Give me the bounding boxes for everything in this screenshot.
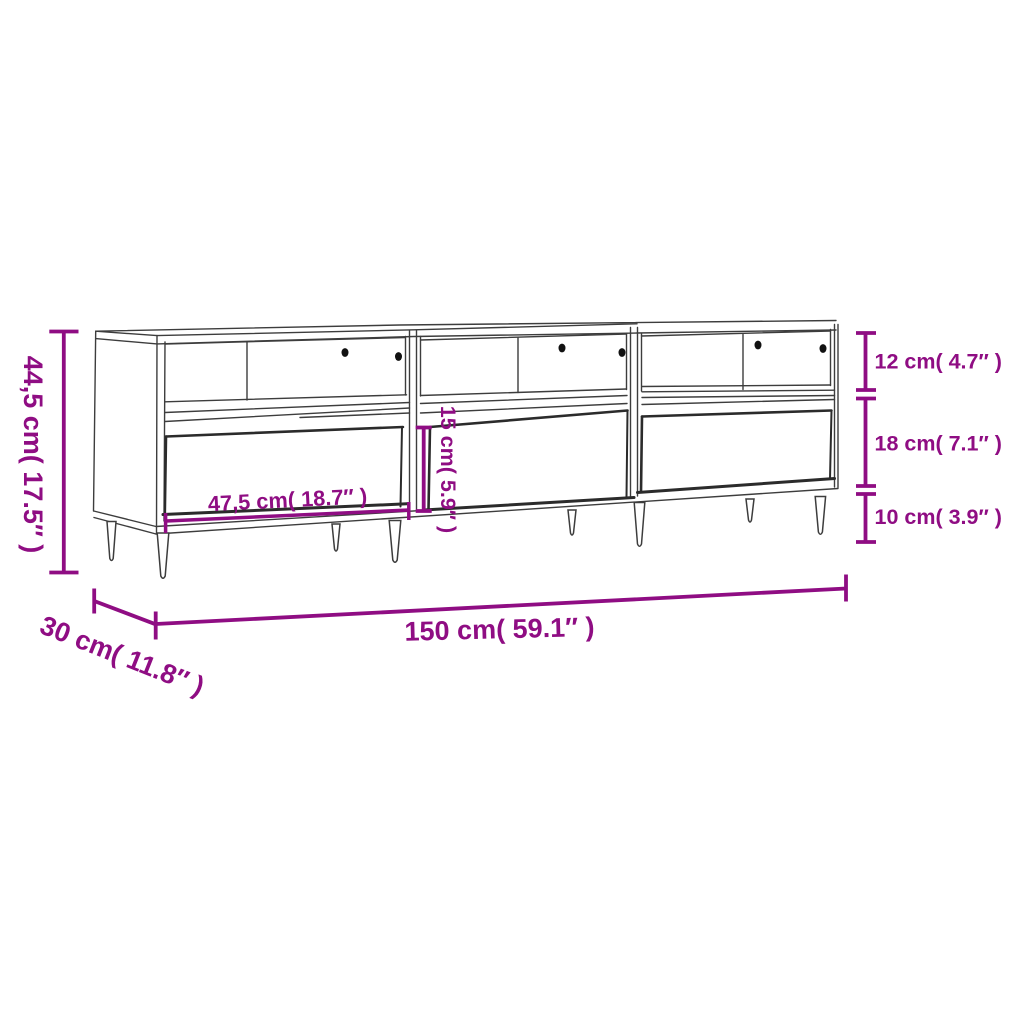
svg-text:18 cm( 7.1″ ): 18 cm( 7.1″ ): [875, 432, 1002, 456]
svg-text:15 cm( 5.9″ ): 15 cm( 5.9″ ): [436, 406, 460, 533]
svg-text:12 cm( 4.7″ ): 12 cm( 4.7″ ): [875, 350, 1002, 374]
svg-text:10 cm( 3.9″ ): 10 cm( 3.9″ ): [875, 505, 1002, 529]
svg-text:44,5 cm( 17.5″ ): 44,5 cm( 17.5″ ): [18, 356, 48, 554]
svg-text:150 cm( 59.1″ ): 150 cm( 59.1″ ): [404, 612, 595, 647]
